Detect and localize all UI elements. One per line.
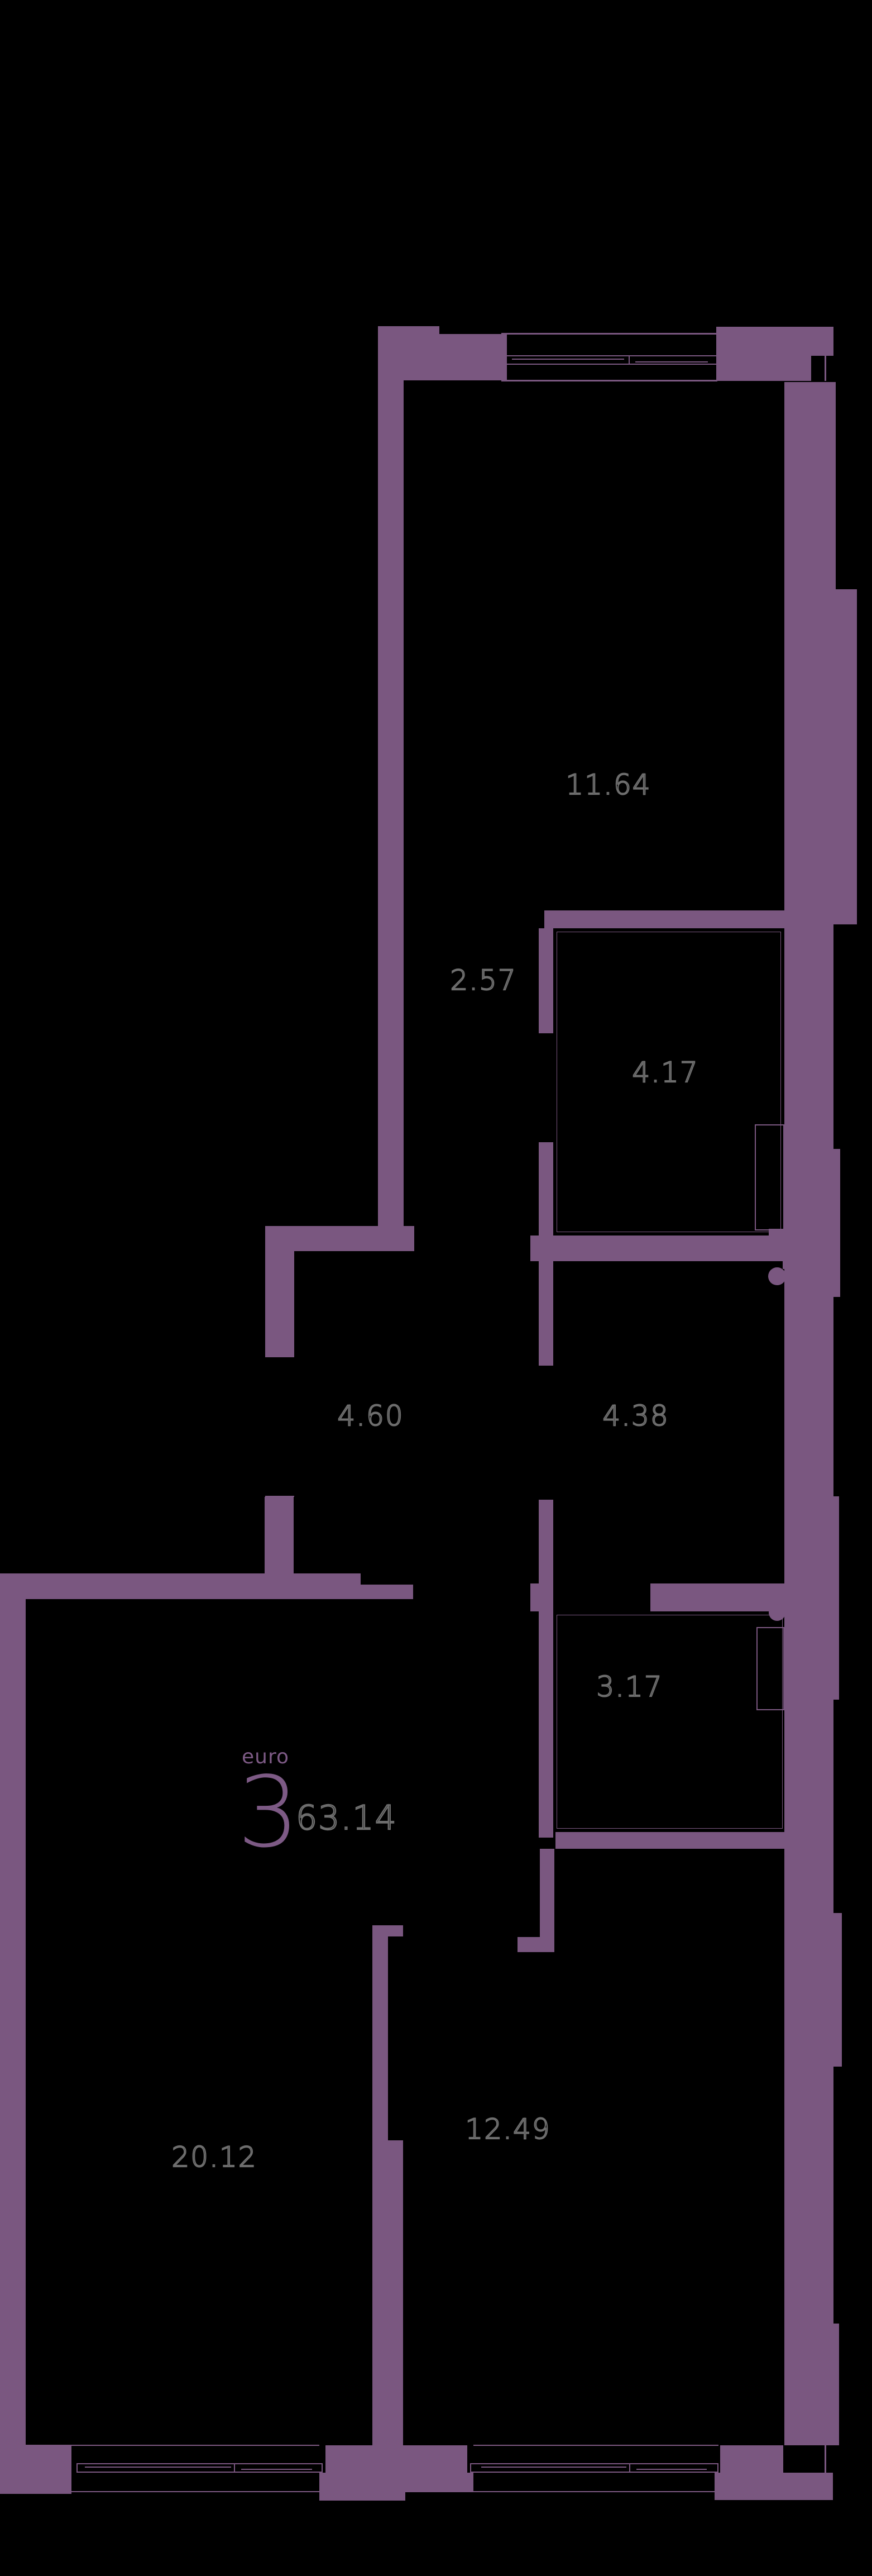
- wall-right-2-wide: [784, 589, 857, 924]
- wall-317-1249-bar: [555, 1832, 784, 1849]
- wall-partition-narrow: [372, 1936, 388, 2140]
- wall-partition-stub: [372, 1925, 403, 1936]
- wall-mid-pier-c: [319, 2492, 405, 2501]
- wall-438-left-upper: [539, 1261, 553, 1366]
- wall-right-6-bump: [784, 1496, 839, 1700]
- wall-left-upper: [378, 380, 404, 1247]
- unit-rooms-count: 3: [237, 1764, 299, 1862]
- window-top-sill-notch: [785, 380, 811, 381]
- window-top-frame: [501, 355, 717, 365]
- window-bl-frame: [76, 2463, 323, 2473]
- pipe-riser-icon-1: [768, 1267, 786, 1285]
- wall-right-3: [784, 924, 833, 1149]
- room-area-label: 4.60: [337, 1400, 404, 1432]
- wall-438-317-stub: [530, 1583, 539, 1611]
- wall-438-317-bar: [650, 1583, 784, 1611]
- room-area-label: 2.57: [450, 964, 516, 996]
- wall-top-left-a: [378, 326, 439, 380]
- wall-partition-full: [372, 2140, 403, 2445]
- window-bl-mullion: [234, 2463, 235, 2473]
- room-area-label: 20.12: [171, 2141, 257, 2173]
- wall-417-left-upper: [539, 928, 553, 1033]
- window-top-sill-line: [501, 380, 717, 381]
- wall-1164-417: [544, 910, 784, 928]
- door-connector-417: [783, 1247, 784, 1269]
- wall-top-right-sub: [716, 356, 811, 381]
- wall-bottom-left-block: [0, 2445, 71, 2494]
- wall-hall-horizontal: [265, 1226, 414, 1251]
- wall-right-10-wide: [784, 2324, 839, 2445]
- room-area-label: 11.64: [566, 769, 651, 801]
- room-area-label: 4.38: [602, 1400, 669, 1432]
- window-br-head-line: [473, 2445, 718, 2446]
- wall-top-left-b: [439, 334, 507, 380]
- wall-right-5: [784, 1297, 833, 1496]
- wall-417-438: [530, 1235, 784, 1261]
- window-top-head-line: [501, 333, 717, 335]
- wall-1249-l-foot: [518, 1937, 554, 1952]
- wall-417-left-lower: [539, 1142, 553, 1235]
- window-bl-sash-left: [85, 2467, 231, 2468]
- room-area-label: 4.17: [632, 1056, 698, 1089]
- wall-notch-line-top: [825, 356, 826, 381]
- wall-room2012-top: [0, 1573, 361, 1599]
- room-area-label: 3.17: [596, 1671, 663, 1703]
- window-bl-head-line: [71, 2445, 319, 2446]
- window-bl-sash-right: [241, 2469, 312, 2470]
- window-br-frame: [470, 2463, 718, 2473]
- wall-right-7: [784, 1700, 833, 1913]
- window-bl-sill-line: [71, 2491, 319, 2492]
- floor-plan: 11.64 2.57 4.17 4.60 4.38 3.17 20.12 12.…: [0, 0, 872, 2576]
- room-area-label: 12.49: [465, 2113, 550, 2145]
- window-top-sash-right: [635, 361, 708, 362]
- wall-mid-pier-a: [325, 2445, 467, 2473]
- wall-mid-pier-b: [319, 2473, 473, 2492]
- wall-bottom-right-block-a: [720, 2445, 783, 2473]
- wall-438-317-left: [539, 1500, 553, 1838]
- wall-top-right-band: [716, 327, 833, 356]
- window-br-sash-right: [636, 2469, 707, 2470]
- wall-right-1: [784, 382, 836, 589]
- wall-entry-upper: [265, 1251, 294, 1357]
- wall-right-9: [784, 2067, 833, 2324]
- window-top-sash-left: [512, 359, 624, 360]
- window-br-sash-left: [481, 2467, 626, 2468]
- window-top-mullion: [629, 355, 630, 365]
- wall-notch-line-bottom: [825, 2445, 826, 2473]
- wall-left-outer: [0, 1599, 26, 2445]
- wall-bottom-right-block-b: [715, 2473, 833, 2500]
- wall-1249-l-vertical: [540, 1849, 554, 1937]
- wall-room2012-top-step: [361, 1585, 413, 1599]
- window-br-sill-line: [473, 2491, 718, 2492]
- entry-threshold-top: [265, 1356, 294, 1357]
- unit-total-area: 63.14: [296, 1801, 397, 1835]
- wall-right-8-bump: [784, 1913, 842, 2067]
- wall-right-4-bump: [784, 1149, 840, 1297]
- window-br-mullion: [629, 2463, 630, 2473]
- wall-entry-lower: [265, 1497, 294, 1573]
- room-outline-317: [557, 1615, 783, 1829]
